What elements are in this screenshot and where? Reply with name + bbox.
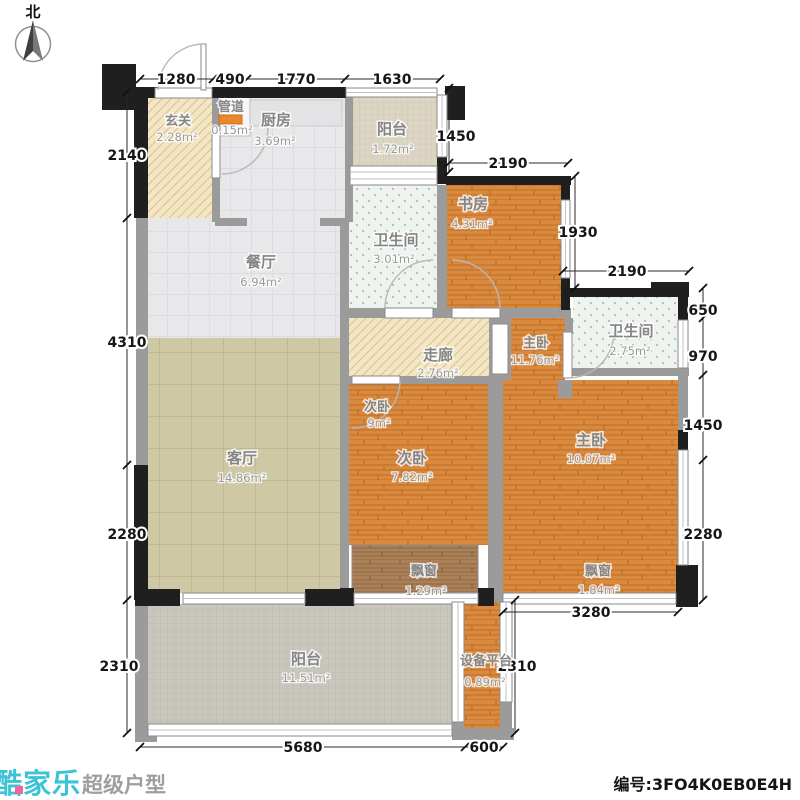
dim-top-3: 1630 (373, 72, 412, 88)
brand-accent-icon (15, 786, 23, 794)
dim-left-1: 4310 (108, 335, 147, 351)
room-bath1-label: 卫生间 (373, 231, 418, 249)
bay-window-left-label: 飘窗 (411, 563, 437, 579)
room-floors (148, 96, 678, 728)
dim-top-2: 1770 (277, 72, 316, 88)
brand-tagline: 超级户型 (82, 773, 166, 797)
balcony-bath-slider (350, 166, 437, 185)
dim-study-height: 1930 (559, 225, 598, 241)
dim-equipment-width: 600 (469, 740, 498, 756)
room-corridor-area: 2.76m² (417, 366, 458, 380)
footer: 酷家乐 超级户型 编号:3FO4K0EB0E4H (0, 767, 792, 800)
dim-right-1: 970 (688, 349, 717, 365)
room-kitchen-area: 3.69m² (254, 134, 295, 148)
bath2-door-leaf (563, 332, 572, 378)
dim-top-0: 1280 (157, 72, 196, 88)
dim-study-width: 2190 (489, 156, 528, 172)
duct-area: 0.15m² (211, 123, 252, 137)
room-bedroom2-label: 次卧 (397, 449, 427, 467)
dim-right-3: 2280 (684, 527, 723, 543)
room-bath2-area: 2.75m² (609, 344, 650, 358)
bath1-door-opening (385, 308, 433, 318)
equipment-platform-label: 设备平台 (460, 653, 512, 669)
room-bath1-area: 3.01m² (373, 252, 414, 266)
room-balcony-top-area: 1.72m² (372, 142, 413, 156)
dim-left-0: 2140 (108, 148, 147, 164)
foyer-passage (492, 324, 508, 374)
equipment-platform-area: 0.89m² (464, 675, 505, 689)
floorplan-page: 1280 490 1770 1630 2140 4310 2280 2310 6… (0, 0, 800, 800)
room-entry-label: 玄关 (165, 113, 191, 129)
room-entry-area: 2.28m² (156, 130, 197, 144)
room-study-area: 4.31m² (451, 217, 492, 231)
dim-balcony-top-height: 1450 (437, 129, 476, 145)
room-dining-label: 餐厅 (246, 253, 276, 271)
north-indicator: 北 (16, 3, 51, 62)
room-study-label: 书房 (458, 195, 488, 213)
room-bedroom2-area2: 9m² (367, 416, 390, 430)
room-master-foyer-area: 11.76m² (511, 353, 560, 367)
bay-window-right-label: 飘窗 (585, 563, 611, 579)
dim-right-2: 1450 (684, 418, 723, 434)
bay-window-right-area: 1.84m² (578, 583, 619, 597)
room-master-foyer-label: 主卧 (523, 335, 549, 351)
room-bedroom2-area: 7.82m² (391, 470, 432, 484)
dim-balcony-bottom-width: 5680 (284, 740, 323, 756)
serial-number: 编号:3FO4K0EB0E4H (614, 775, 792, 794)
study-door-opening (452, 308, 500, 318)
room-balcony-bottom-label: 阳台 (291, 650, 321, 668)
floorplan-canvas: 1280 490 1770 1630 2140 4310 2280 2310 6… (0, 0, 800, 800)
room-living-label: 客厅 (226, 449, 257, 467)
north-label: 北 (25, 3, 40, 21)
bay-window-left-area: 1.29m² (405, 584, 446, 598)
dim-top-1: 490 (215, 72, 244, 88)
room-master-label: 主卧 (576, 431, 606, 449)
room-living-area: 14.86m² (218, 471, 267, 485)
room-corridor-label: 走廊 (423, 346, 453, 364)
entry-door-leaf (201, 44, 206, 90)
room-bath2-label: 卫生间 (608, 322, 653, 340)
dim-right-0: 650 (688, 303, 717, 319)
duct-label: 管道 (218, 99, 244, 115)
room-kitchen-label: 厨房 (261, 111, 291, 129)
dim-left-3: 2310 (100, 659, 139, 675)
dim-left-2: 2280 (108, 527, 147, 543)
room-master-area: 10.07m² (567, 452, 616, 466)
dim-bath2-width: 2190 (608, 264, 647, 280)
room-master-floor (503, 380, 678, 593)
dim-master-bay-width: 3280 (572, 605, 611, 621)
room-balcony-top-label: 阳台 (377, 120, 407, 138)
bedroom2-door-opening (352, 376, 400, 384)
room-dining-area: 6.94m² (240, 275, 281, 289)
room-bedroom2-label2: 次卧 (364, 399, 390, 415)
room-balcony-bottom-area: 11.51m² (282, 671, 331, 685)
brand-logo: 酷家乐 (0, 767, 81, 800)
